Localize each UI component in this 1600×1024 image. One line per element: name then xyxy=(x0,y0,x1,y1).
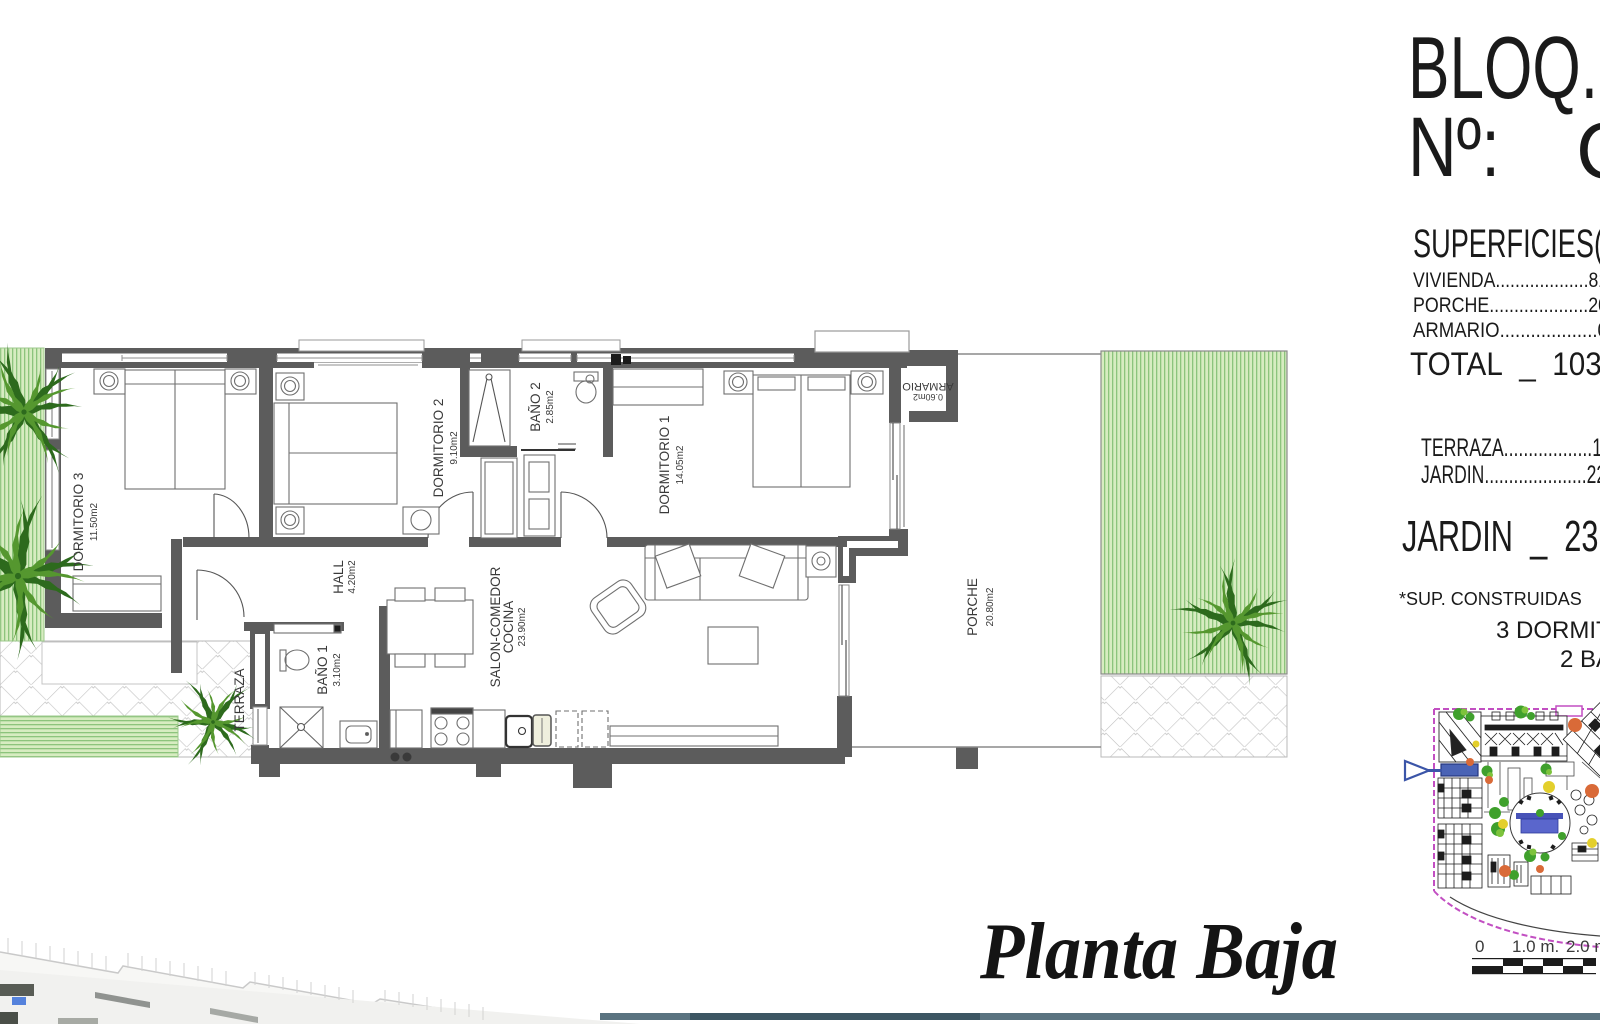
svg-text:JARDIN _ 23,: JARDIN _ 23, xyxy=(1402,512,1600,561)
svg-text:HALL: HALL xyxy=(331,560,346,594)
svg-text:0.60m2: 0.60m2 xyxy=(913,392,943,402)
svg-text:PORCHE: PORCHE xyxy=(965,578,980,636)
svg-text:DORMITORIO 2: DORMITORIO 2 xyxy=(431,399,446,498)
svg-text:4.20m2: 4.20m2 xyxy=(347,560,358,594)
svg-text:ARMARIO: ARMARIO xyxy=(902,380,954,392)
svg-text:3 DORMITORIOS: 3 DORMITORIOS xyxy=(1496,617,1600,644)
svg-text:SUPERFICIES(: SUPERFICIES( xyxy=(1413,222,1600,266)
svg-text:*SUP. CONSTRUIDAS: *SUP. CONSTRUIDAS xyxy=(1399,589,1582,609)
svg-text:VIVIENDA...................81,: VIVIENDA...................81, xyxy=(1413,269,1600,292)
svg-text:COCINA: COCINA xyxy=(501,601,516,654)
svg-text:1.0 m.: 1.0 m. xyxy=(1512,937,1559,956)
svg-text:BAÑO 2: BAÑO 2 xyxy=(528,382,543,432)
svg-text:TERRAZA: TERRAZA xyxy=(232,668,247,731)
svg-text:PORCHE....................20,: PORCHE....................20, xyxy=(1413,294,1600,317)
svg-text:2.0 m: 2.0 m xyxy=(1566,937,1600,956)
svg-text:2 BAÑOS: 2 BAÑOS xyxy=(1560,646,1600,673)
svg-text:Planta Baja: Planta Baja xyxy=(979,908,1338,996)
svg-text:Nº:: Nº: xyxy=(1408,100,1500,194)
svg-text:C: C xyxy=(1576,106,1600,195)
svg-text:TERRAZA..................1,: TERRAZA..................1, xyxy=(1421,434,1600,462)
svg-text:20.80m2: 20.80m2 xyxy=(985,587,996,626)
svg-text:DORMITORIO 1: DORMITORIO 1 xyxy=(657,416,672,515)
svg-text:DORMITORIO 3: DORMITORIO 3 xyxy=(71,473,86,572)
svg-text:3.10m2: 3.10m2 xyxy=(332,653,343,687)
svg-text:23.90m2: 23.90m2 xyxy=(517,607,528,646)
svg-text:2.85m2: 2.85m2 xyxy=(545,390,556,424)
svg-text:JARDIN.....................22,: JARDIN.....................22, xyxy=(1421,461,1600,489)
svg-text:9.10m2: 9.10m2 xyxy=(449,431,460,465)
svg-text:14.05m2: 14.05m2 xyxy=(675,445,686,484)
svg-text:BAÑO 1: BAÑO 1 xyxy=(315,645,330,695)
svg-text:0: 0 xyxy=(1475,937,1484,956)
svg-text:TOTAL _ 103,: TOTAL _ 103, xyxy=(1410,346,1600,382)
svg-text:ARMARIO...................0,: ARMARIO...................0, xyxy=(1413,319,1600,342)
svg-text:11.50m2: 11.50m2 xyxy=(89,502,100,541)
